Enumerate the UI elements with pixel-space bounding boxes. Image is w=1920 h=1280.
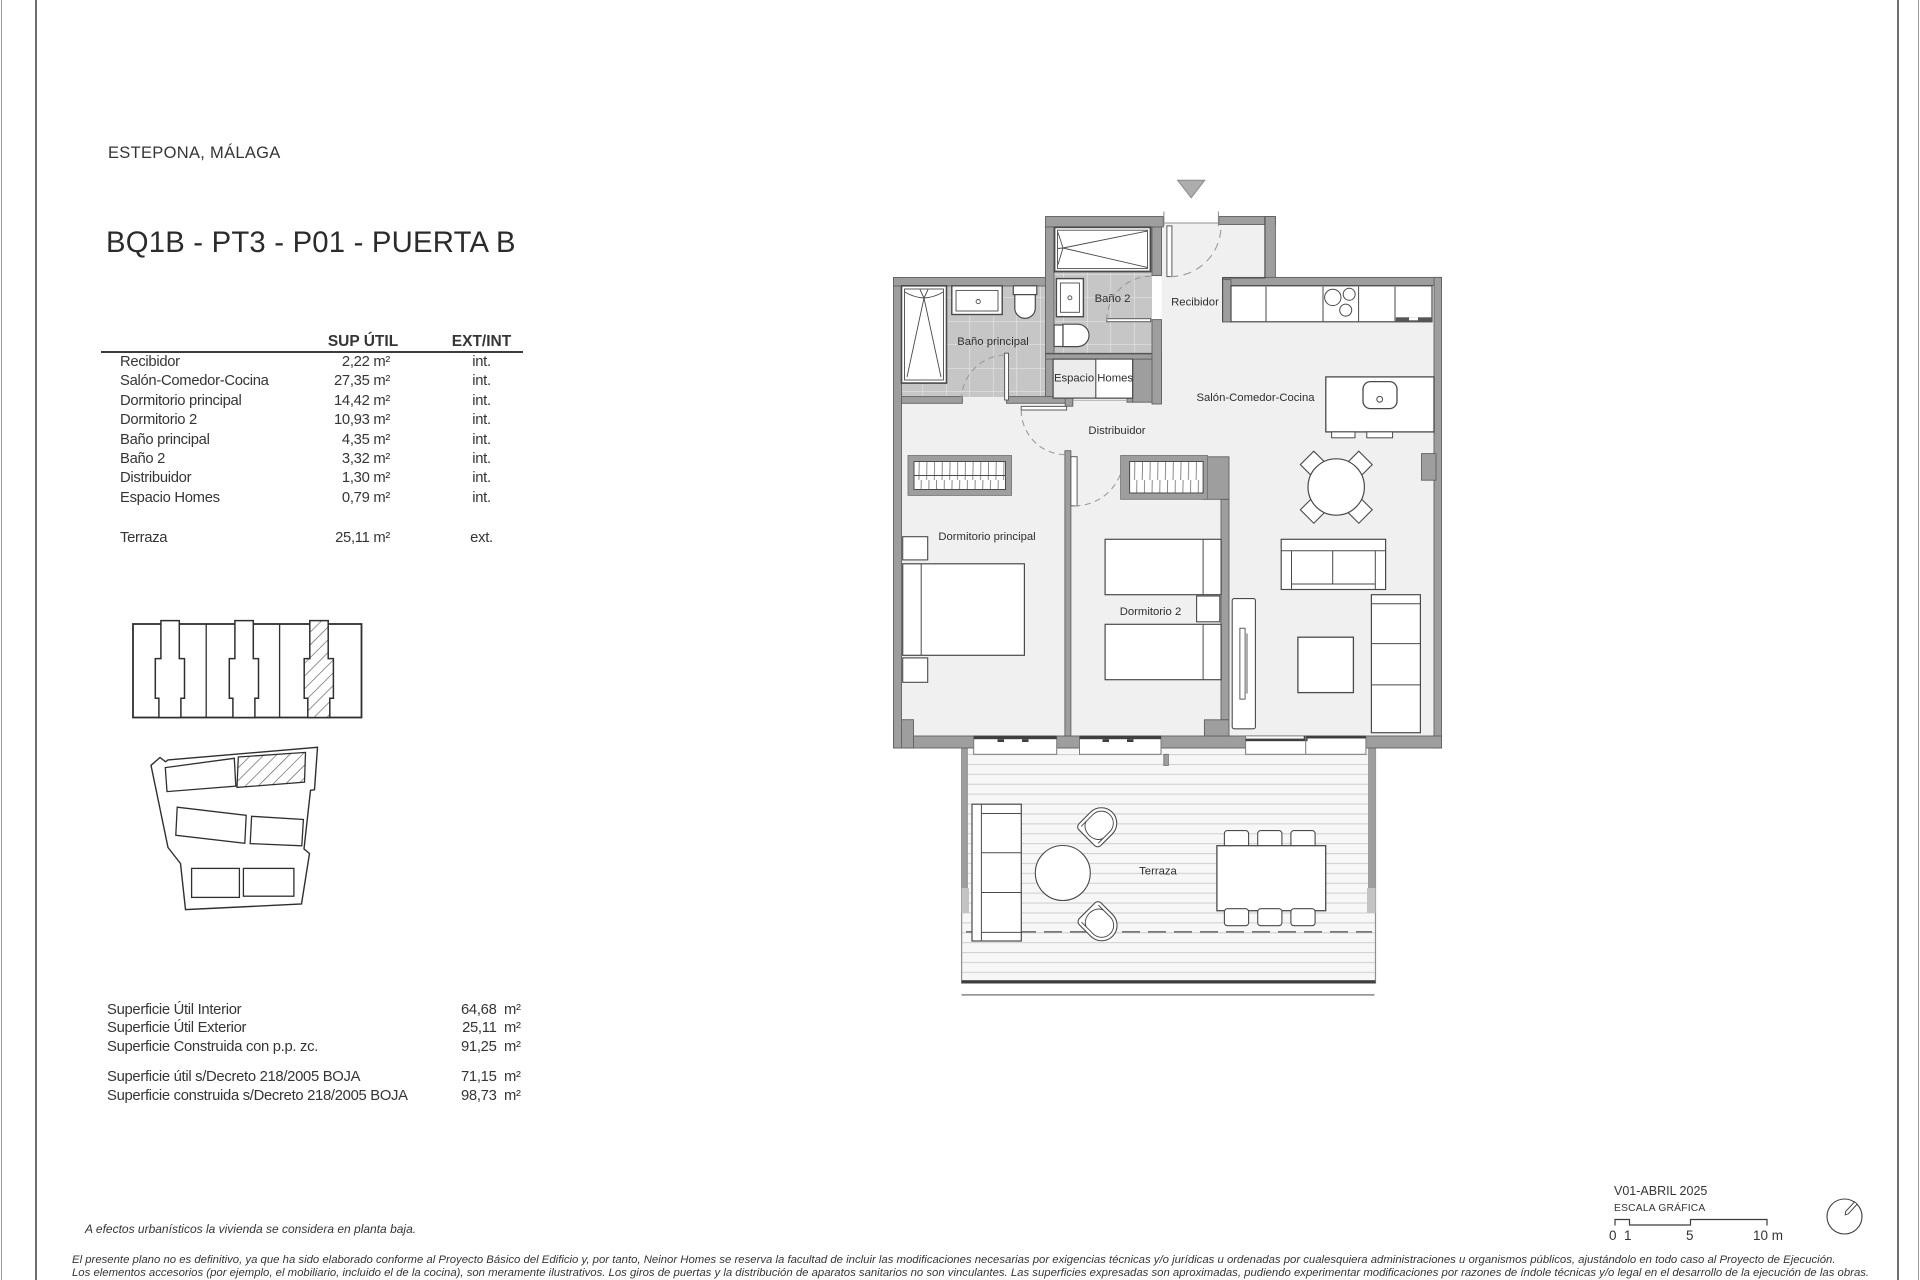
svg-text:Espacio Homes: Espacio Homes	[1054, 372, 1133, 384]
svg-text:Dormitorio 2: Dormitorio 2	[1120, 606, 1182, 618]
svg-text:Distribuidor: Distribuidor	[1088, 425, 1145, 437]
svg-text:Baño 2: Baño 2	[1095, 293, 1131, 305]
svg-text:Baño principal: Baño principal	[957, 336, 1029, 348]
svg-text:Recibidor: Recibidor	[1171, 296, 1219, 308]
svg-text:Dormitorio principal: Dormitorio principal	[938, 531, 1035, 543]
svg-text:Terraza: Terraza	[1139, 865, 1177, 877]
svg-text:Salón-Comedor-Cocina: Salón-Comedor-Cocina	[1196, 392, 1315, 404]
